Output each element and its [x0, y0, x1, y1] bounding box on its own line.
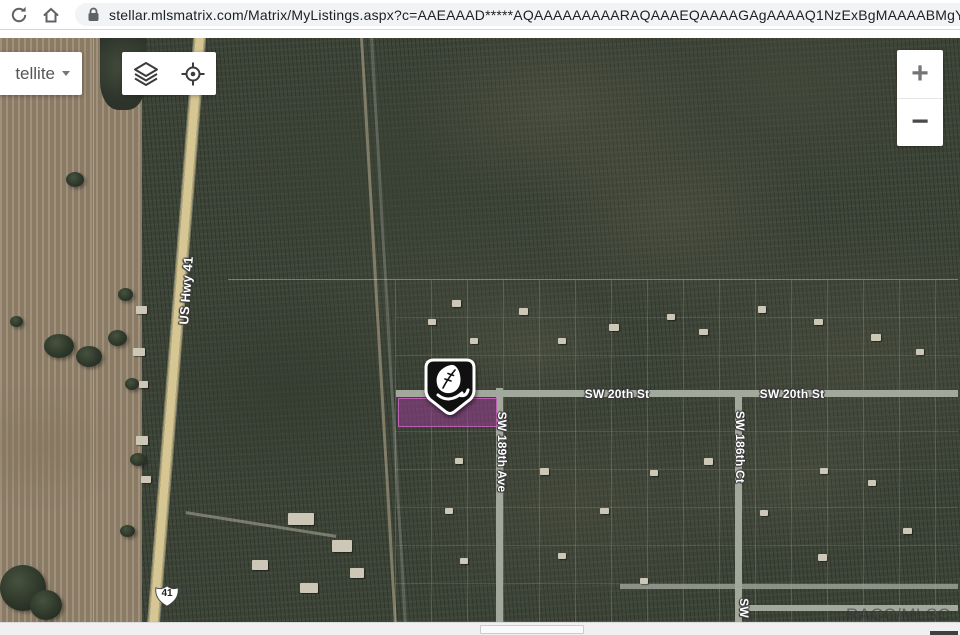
house-roof — [609, 324, 619, 331]
browser-address-bar-row: stellar.mlsmatrix.com/Matrix/MyListings.… — [0, 0, 960, 30]
horizontal-scrollbar-thumb[interactable] — [480, 625, 584, 634]
zoom-control: + − — [897, 50, 943, 146]
house-roof — [903, 528, 912, 534]
house-roof — [452, 300, 461, 307]
street-label-sw-20th-st-west: SW 20th St — [574, 387, 660, 401]
house-roof — [558, 553, 566, 559]
tree-clump — [66, 172, 84, 187]
tree-clump — [125, 378, 139, 390]
tree-pin-marker[interactable] — [423, 357, 477, 415]
mls-watermark: RACC/MLSC — [846, 605, 951, 622]
map-type-label: tellite — [15, 64, 55, 84]
locate-crosshair-icon[interactable] — [179, 60, 207, 88]
house-roof — [818, 554, 827, 561]
street-label-sw-20th-st-east: SW 20th St — [749, 387, 835, 401]
house-roof — [640, 578, 648, 584]
house-roof — [445, 508, 453, 514]
tree-clump — [10, 316, 23, 327]
house-roof — [868, 480, 876, 486]
house-roof — [667, 314, 675, 320]
house-roof — [814, 319, 823, 325]
house-roof — [460, 558, 468, 564]
reload-icon[interactable] — [9, 5, 29, 25]
address-bar[interactable]: stellar.mlsmatrix.com/Matrix/MyListings.… — [75, 3, 960, 26]
window-corner-element — [930, 631, 958, 635]
house-roof — [820, 468, 828, 474]
dirt-trail — [360, 38, 398, 622]
house-roof — [133, 348, 145, 356]
tree-clump — [76, 346, 102, 367]
house-roof — [428, 319, 436, 325]
parcel-grid — [395, 280, 958, 622]
house-roof — [470, 338, 478, 344]
road-sw-20th-st — [396, 390, 958, 397]
application-window: stellar.mlsmatrix.com/Matrix/MyListings.… — [0, 0, 960, 635]
map-tools-toolbar — [122, 52, 216, 95]
house-roof — [760, 510, 768, 516]
tree-clump — [108, 330, 127, 346]
layers-icon[interactable] — [132, 60, 160, 88]
zoom-in-button[interactable]: + — [897, 50, 943, 99]
house-roof — [699, 329, 708, 335]
house-roof — [871, 334, 881, 341]
house-roof — [332, 540, 352, 552]
house-roof — [252, 560, 268, 570]
house-roof — [558, 338, 566, 344]
map-canvas[interactable]: SW 20th St SW 20th St SW 189th Ave SW 18… — [0, 38, 960, 622]
tree-clump — [130, 453, 146, 466]
house-roof — [136, 306, 147, 314]
house-roof — [350, 568, 364, 578]
tree-clump — [118, 288, 133, 301]
house-roof — [300, 583, 318, 593]
street-label-sw-partial: SW — [737, 595, 751, 621]
tree-clump — [44, 334, 74, 358]
zoom-out-button[interactable]: − — [897, 99, 943, 147]
route-41-shield: 41 — [153, 584, 181, 608]
tree-clump — [120, 525, 135, 537]
bottom-strip — [0, 622, 960, 635]
house-roof — [704, 458, 713, 465]
dropdown-caret-icon — [62, 71, 70, 76]
satellite-map-type-button[interactable]: tellite — [0, 52, 82, 95]
house-roof — [540, 468, 549, 475]
house-roof — [650, 470, 658, 476]
tree-clump — [30, 590, 62, 620]
route-shield-number: 41 — [153, 588, 181, 599]
street-label-sw-189th-ave: SW 189th Ave — [495, 406, 509, 498]
field-fence-line — [93, 38, 94, 622]
street-label-sw-186th-ct: SW 186th Ct — [733, 405, 747, 489]
house-roof — [600, 508, 609, 514]
lock-icon — [87, 7, 100, 22]
house-roof — [758, 306, 766, 313]
home-icon[interactable] — [41, 5, 61, 25]
house-roof — [139, 381, 148, 388]
url-text: stellar.mlsmatrix.com/Matrix/MyListings.… — [109, 7, 960, 23]
house-roof — [288, 513, 314, 525]
parcel-boundary-line — [228, 279, 958, 280]
house-roof — [141, 476, 151, 483]
road-horizontal-south — [620, 584, 958, 589]
house-roof — [455, 458, 463, 464]
house-roof — [519, 308, 528, 315]
house-roof — [136, 436, 148, 445]
house-roof — [916, 349, 924, 355]
